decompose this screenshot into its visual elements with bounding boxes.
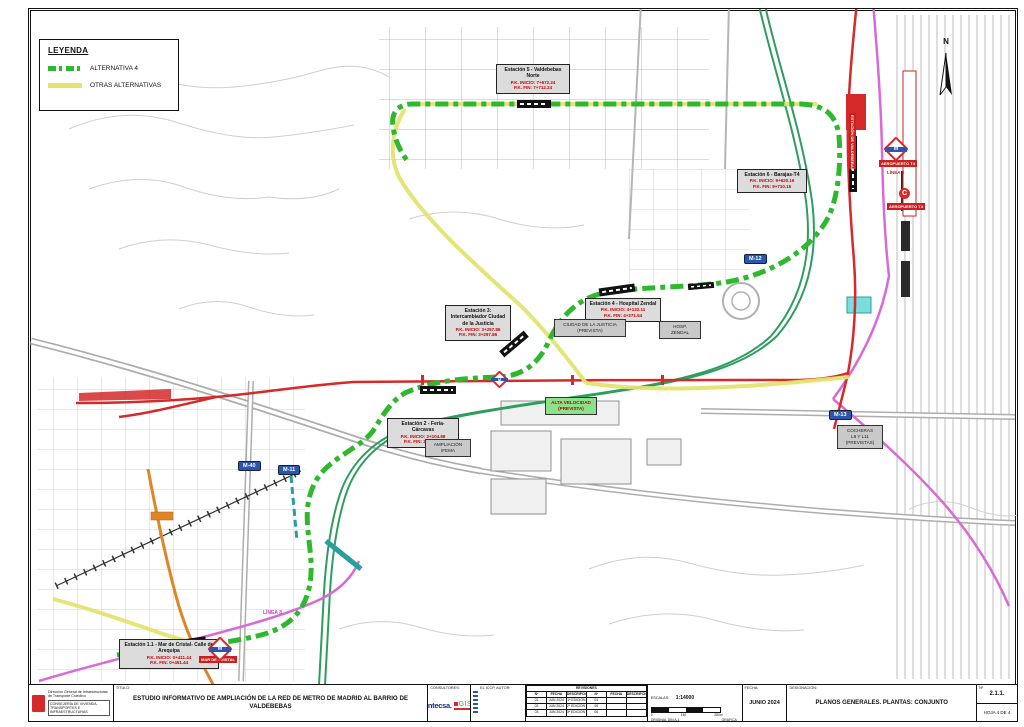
label-aeropuerto-t4-metro: AEROPUERTO T4 [879,160,917,167]
label-linea8-left: LÍNEA 8 [263,610,282,616]
legend-item-otras: OTRAS ALTERNATIVAS [48,82,170,89]
hoja-value: HOJA 4 DE 4 [977,704,1017,722]
compass-north-label: N [937,37,955,46]
alternativa4-line-swatch [48,66,82,71]
road-badge-m13: M-13 [829,410,852,420]
comunidad-madrid-logo [32,695,45,712]
map-area: LEYENDA ALTERNATIVA 4 OTRAS ALTERNATIVAS… [29,9,1017,684]
station-box-1: Estación 1.1 - Mar de Cristal- Calle de … [119,639,219,669]
gis-logo: GIS [454,701,471,710]
escalas-label: ESCALAS: [651,696,670,700]
station-box-4: Estación 4 - Hospital Zendal P.K. INICIO… [585,298,661,322]
info-box-ciudad-justicia: CIUDAD DE LA JUSTICIA (PREVISTA) [554,319,626,337]
road-badge-m40: M-40 [238,461,261,471]
metro-logo-icon: M [211,640,229,658]
designacion-value: PLANOS GENERALES. PLANTAS: CONJUNTO [787,685,976,721]
project-title: ESTUDIO INFORMATIVO DE AMPLIACIÓN DE LA … [114,695,427,711]
num-value: 2.1.1. [977,685,1017,703]
escala-value: 1:14000 [676,695,694,701]
label-estacion-valdebebas: ESTACIÓN DE VALDEBEBAS [849,113,856,169]
revisiones-table: REVISIONES Nº FECHA DESCRIPCIÓN Nº FECHA… [526,685,647,717]
cercanias-logo-icon: C [899,188,910,199]
info-box-alta-velocidad: ALTA VELOCIDAD (PREVISTA) [545,397,597,415]
designacion-cell: DESIGNACIÓN: PLANOS GENERALES. PLANTAS: … [787,685,977,721]
sheet-frame: LEYENDA ALTERNATIVA 4 OTRAS ALTERNATIVAS… [28,8,1018,722]
info-box-cocheras: COCHERAS L8 Y L11 (PREVISTAS) [837,425,883,449]
label-aeropuerto-t4-cercanias: AEROPUERTO T4 [887,203,925,210]
escalas-cell: ESCALAS: 1:14000 0 140 280m ORIGINAL DIN… [648,685,743,721]
grafica: GRÁFICA [722,718,737,721]
revisiones-cell: REVISIONES Nº FECHA DESCRIPCIÓN Nº FECHA… [526,685,648,721]
consultores-cell: CONSULTORES: intecsa. GIS [428,685,471,721]
legend: LEYENDA ALTERNATIVA 4 OTRAS ALTERNATIVAS [39,39,179,111]
org-cell: Dirección General de Infraestructuras de… [29,685,114,721]
scale-ticks: 0 140 280m [651,713,723,717]
plan-sheet-screenshot: { "legend": { "title": "LEYENDA", "alter… [0,0,1024,727]
fecha-value: JUNIO 2024 [743,685,787,721]
revision-row: 03 JUN 2024 3ª EDICIÓN (TRAS SUPERVISIÓN… [526,710,646,716]
org-conserjeria: CONSEJERÍA DE VIVIENDA, TRANSPORTES E IN… [48,700,110,716]
station-box-6: Estación 6 - Barajas-T4 P.K. INICIO: 9+6… [737,169,807,193]
info-box-ampliacion-ifema: AMPLIACIÓN IFEMA [425,439,471,457]
original-din: ORIGINAL DIN A-1 [651,718,680,721]
station-box-5: Estación 5 - Valdebebas Norte P.K. INICI… [496,64,570,94]
legend-title: LEYENDA [48,46,170,55]
intecsa-logo: intecsa. [428,701,451,710]
titulo-cell: TÍTULO: ESTUDIO INFORMATIVO DE AMPLIACIÓ… [114,685,428,721]
road-badge-m12: M-12 [744,254,767,264]
consultant-vertical-logo [473,691,478,713]
org-name: Dirección General de Infraestructuras de… [48,690,108,698]
orange-line-badge [151,512,173,520]
station-box-3: Estación 3: Intercambiador Ciudad de la … [445,305,511,341]
otras-alternativas-line-swatch [48,83,82,88]
label-linea8-right: LÍNEA 8 [887,170,904,175]
title-block: Dirección General de Infraestructuras de… [29,684,1017,721]
info-box-hosp-zendal: HOSP. ZENDAL [659,321,701,339]
road-badge-m11: M-11 [278,465,300,475]
autor-label: EL ICCP, AUTOR: [480,686,510,690]
metro-logo-icon-t4: M [887,140,905,158]
cyan-interchange-box [847,297,871,313]
legend-item-alternativa4: ALTERNATIVA 4 [48,65,170,72]
compass-north: N [937,37,955,46]
metro-logo-icon-center: M [493,373,506,386]
autor-cell: EL ICCP, AUTOR: [471,685,526,721]
numero-cell: Nº 2.1.1. HOJA 4 DE 4 [977,685,1017,721]
fecha-cell: FECHA: JUNIO 2024 [743,685,788,721]
consultores-label: CONSULTORES: [430,686,460,690]
